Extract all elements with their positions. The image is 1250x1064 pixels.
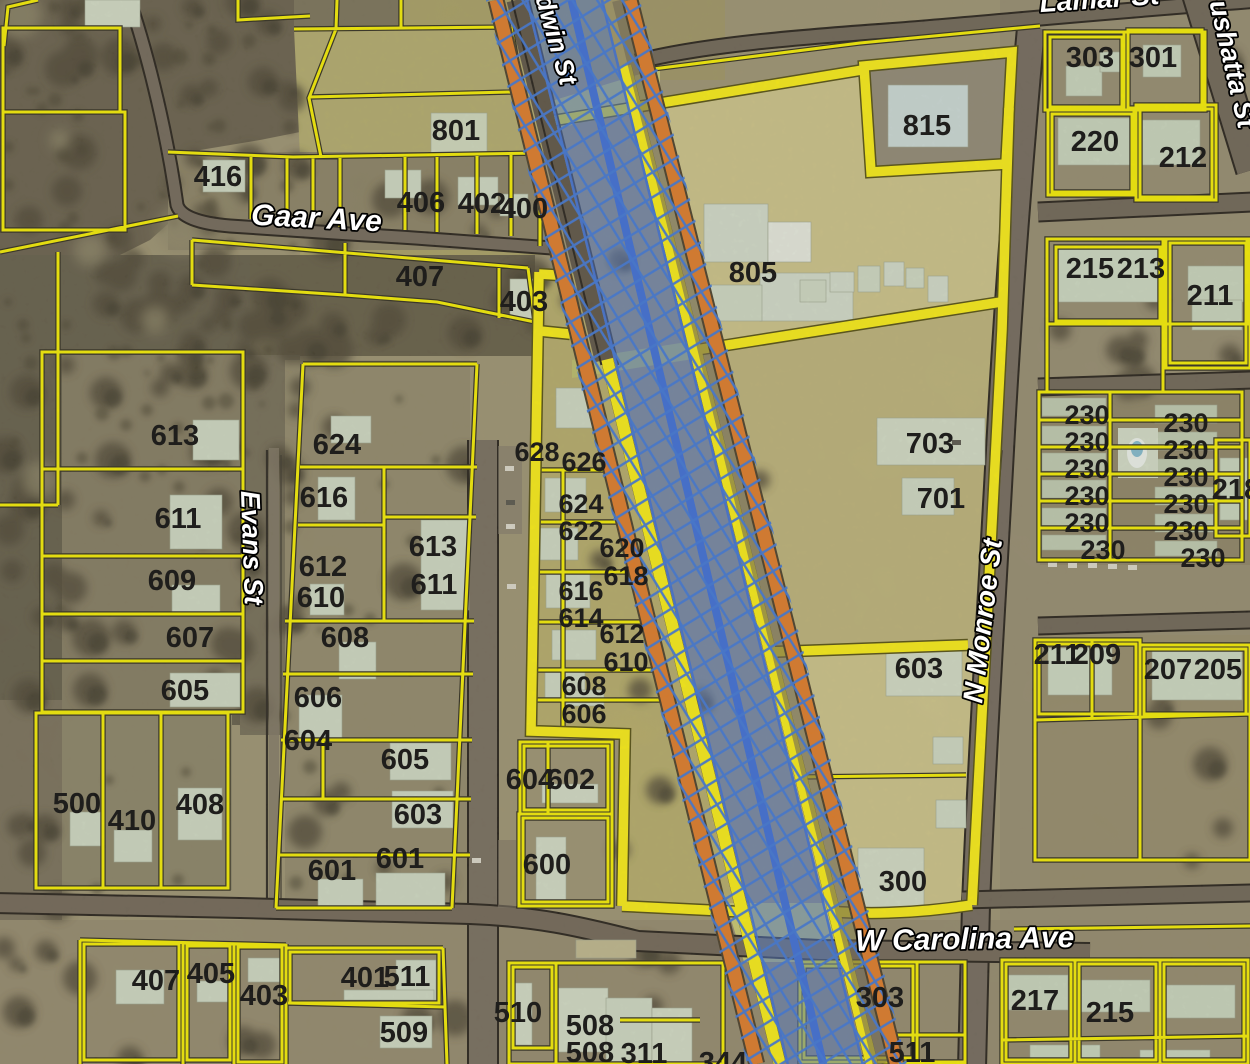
svg-text:Evans St: Evans St (235, 490, 269, 606)
svg-text:Gaar Ave: Gaar Ave (250, 199, 382, 239)
svg-text:W Carolina Ave: W Carolina Ave (855, 921, 1074, 958)
